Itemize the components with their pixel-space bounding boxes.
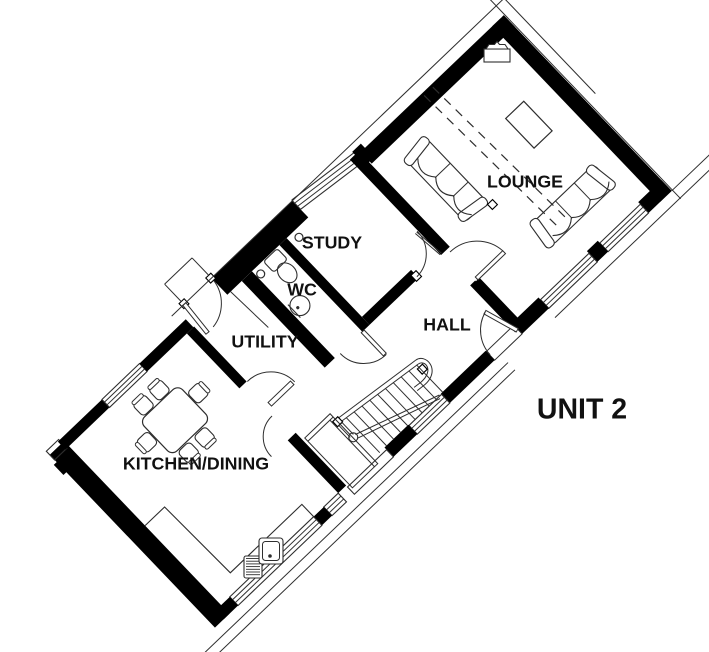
svg-text:WC: WC — [287, 280, 317, 300]
svg-text:UTILITY: UTILITY — [231, 332, 298, 352]
svg-text:LOUNGE: LOUNGE — [487, 172, 563, 192]
svg-text:STUDY: STUDY — [302, 233, 362, 253]
svg-text:KITCHEN/DINING: KITCHEN/DINING — [123, 454, 269, 474]
svg-text:HALL: HALL — [423, 315, 471, 335]
svg-text:UNIT 2: UNIT 2 — [537, 394, 627, 426]
